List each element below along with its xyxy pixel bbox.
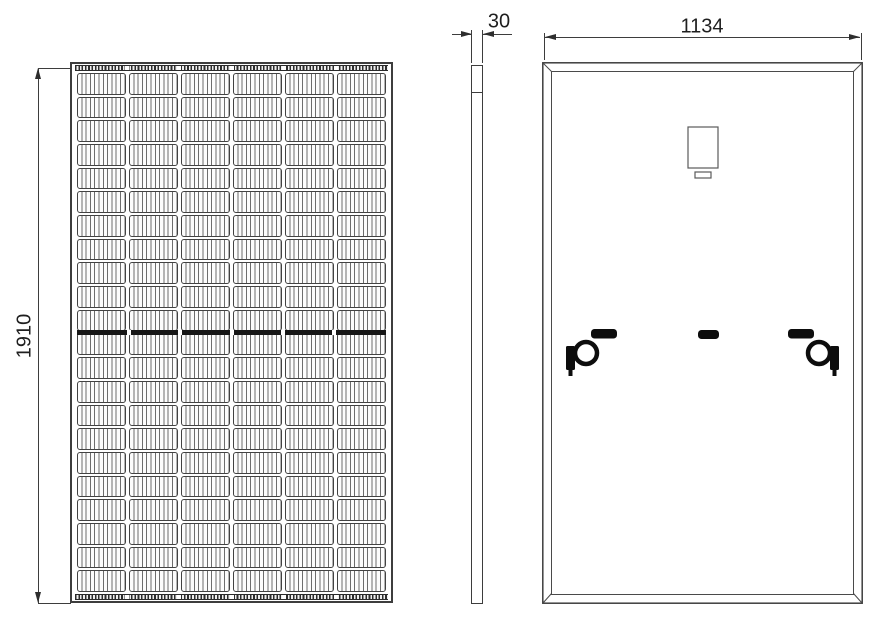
solar-cell [77, 523, 126, 545]
solar-cell [233, 168, 282, 190]
cable-connector-right-vertical [830, 346, 839, 370]
center-busbar [77, 330, 386, 335]
solar-cell [337, 73, 386, 95]
height-dimension-line [38, 68, 39, 603]
solar-cell [285, 120, 334, 142]
solar-cell [233, 357, 282, 379]
solar-cell [337, 310, 386, 332]
solar-cell [285, 357, 334, 379]
band-notch [332, 330, 336, 335]
solar-cell [181, 73, 230, 95]
solar-cell [337, 547, 386, 569]
solar-cell [129, 428, 178, 450]
band-notch [281, 330, 285, 335]
solar-cell [233, 120, 282, 142]
solar-cell [77, 547, 126, 569]
solar-cell [337, 286, 386, 308]
solar-cell [337, 405, 386, 427]
solar-cell [285, 73, 334, 95]
solar-cell [233, 191, 282, 213]
solar-cell [77, 168, 126, 190]
solar-cell [337, 381, 386, 403]
solar-cell [129, 310, 178, 332]
side-frame-seam [472, 92, 482, 93]
solar-cell [181, 286, 230, 308]
solar-cell [129, 168, 178, 190]
solar-cell [285, 239, 334, 261]
solar-cell [77, 97, 126, 119]
band-notch [125, 595, 129, 599]
solar-cell [181, 381, 230, 403]
solar-cell [181, 476, 230, 498]
band-notch [230, 595, 234, 599]
band-notch [334, 66, 338, 70]
solar-cell [233, 215, 282, 237]
solar-cell [77, 215, 126, 237]
solar-cell [181, 523, 230, 545]
junction-box-label-strip [695, 172, 711, 178]
height-dimension-label: 1910 [14, 314, 37, 359]
solar-cell [337, 357, 386, 379]
solar-cell [337, 499, 386, 521]
solar-cell [129, 191, 178, 213]
solar-cell [233, 523, 282, 545]
width-dimension-line [545, 37, 860, 38]
solar-cell [285, 168, 334, 190]
solar-cell [181, 120, 230, 142]
solar-cell [285, 333, 334, 355]
solar-cell [77, 73, 126, 95]
solar-cell [77, 333, 126, 355]
width-dimension-label: 1134 [680, 16, 723, 39]
solar-cell [233, 144, 282, 166]
solar-cell [181, 405, 230, 427]
solar-cell [77, 144, 126, 166]
solar-cell [337, 428, 386, 450]
solar-cell [129, 405, 178, 427]
band-notch [177, 595, 181, 599]
band-notch [230, 330, 234, 335]
solar-cell [285, 191, 334, 213]
frame-band [75, 594, 388, 600]
solar-cell [233, 73, 282, 95]
solar-cell [233, 499, 282, 521]
solar-cell [285, 523, 334, 545]
solar-cell [77, 286, 126, 308]
band-notch [125, 66, 129, 70]
solar-cell [77, 310, 126, 332]
dimension-arrow-left [483, 31, 494, 37]
solar-cell [77, 262, 126, 284]
solar-cell [181, 310, 230, 332]
extension-line-left [471, 30, 472, 63]
solar-cell [285, 570, 334, 592]
solar-cell [129, 547, 178, 569]
solar-cell [233, 405, 282, 427]
solar-cell [233, 452, 282, 474]
solar-cell [285, 97, 334, 119]
solar-cell [181, 452, 230, 474]
solar-cell [77, 120, 126, 142]
solar-cell [181, 547, 230, 569]
solar-cell [337, 215, 386, 237]
solar-cell [77, 405, 126, 427]
extension-line-left [544, 33, 545, 60]
solar-cell [285, 310, 334, 332]
solar-cell [129, 73, 178, 95]
solar-cell [181, 262, 230, 284]
band-notch [334, 595, 338, 599]
solar-cell [233, 428, 282, 450]
extension-line-right [861, 33, 862, 60]
cable-connector-right-pin [833, 370, 837, 376]
solar-cell [129, 381, 178, 403]
solar-cell [285, 144, 334, 166]
dimension-arrow-right [849, 34, 860, 40]
solar-cell [129, 120, 178, 142]
side-panel-profile [471, 65, 483, 604]
solar-cell [77, 452, 126, 474]
solar-cell [181, 191, 230, 213]
solar-cell [285, 262, 334, 284]
solar-cell [233, 547, 282, 569]
band-notch [282, 66, 286, 70]
solar-cell [337, 168, 386, 190]
solar-cell [77, 476, 126, 498]
solar-cell [285, 428, 334, 450]
solar-cell [337, 570, 386, 592]
solar-cell [285, 499, 334, 521]
solar-cell [233, 262, 282, 284]
band-notch [127, 330, 131, 335]
solar-cell [129, 286, 178, 308]
band-notch [177, 66, 181, 70]
solar-cell [337, 523, 386, 545]
dimension-arrow-down [35, 592, 41, 603]
center-cable-clip [698, 330, 719, 339]
solar-cell [233, 239, 282, 261]
solar-cell [77, 381, 126, 403]
solar-cell [337, 262, 386, 284]
cable-connector-left-horizontal [591, 329, 617, 339]
solar-cell [129, 97, 178, 119]
solar-cell [181, 239, 230, 261]
solar-cell [129, 476, 178, 498]
extension-line-bottom [38, 603, 71, 604]
solar-cell [129, 262, 178, 284]
cable-connector-right-horizontal [788, 329, 814, 339]
solar-cell [337, 476, 386, 498]
solar-cell [129, 523, 178, 545]
extension-line-right [482, 30, 483, 63]
solar-cell [285, 476, 334, 498]
solar-cell [337, 239, 386, 261]
solar-cell [233, 97, 282, 119]
solar-cell [285, 547, 334, 569]
solar-cell [181, 97, 230, 119]
cable-connector-left-vertical [566, 346, 575, 370]
solar-cell [181, 168, 230, 190]
cable-connector-left-pin [569, 370, 573, 376]
solar-cell [129, 239, 178, 261]
front-panel-frame [70, 62, 393, 603]
solar-cell [233, 333, 282, 355]
solar-cell [181, 499, 230, 521]
frame-band [75, 65, 388, 71]
solar-cell [285, 215, 334, 237]
dimension-arrow-left [545, 34, 556, 40]
solar-cell [77, 239, 126, 261]
solar-cell [233, 286, 282, 308]
solar-cell [181, 215, 230, 237]
solar-cell [77, 191, 126, 213]
drawing-canvas: 1910 30 1134 [0, 0, 890, 630]
solar-cell [285, 286, 334, 308]
solar-cell [181, 357, 230, 379]
solar-cell [233, 381, 282, 403]
solar-cell [181, 570, 230, 592]
solar-cell [77, 428, 126, 450]
solar-cell [77, 499, 126, 521]
dimension-arrow-up [35, 68, 41, 79]
solar-cell [77, 570, 126, 592]
solar-cell [285, 381, 334, 403]
solar-cell [337, 333, 386, 355]
band-notch [230, 66, 234, 70]
solar-cell [77, 357, 126, 379]
solar-cell [233, 310, 282, 332]
solar-cell [337, 144, 386, 166]
band-notch [282, 595, 286, 599]
solar-cell [129, 333, 178, 355]
solar-cell [337, 452, 386, 474]
solar-cell [129, 499, 178, 521]
junction-box [688, 127, 718, 168]
solar-cell [285, 405, 334, 427]
solar-cell [337, 191, 386, 213]
solar-cell [285, 452, 334, 474]
solar-cell [129, 215, 178, 237]
back-panel-drawing [542, 62, 863, 604]
solar-cell [129, 452, 178, 474]
solar-cell [337, 120, 386, 142]
solar-cell [129, 144, 178, 166]
band-notch [178, 330, 182, 335]
solar-cell [181, 428, 230, 450]
solar-cell [181, 144, 230, 166]
solar-cell [337, 97, 386, 119]
solar-cell [181, 333, 230, 355]
solar-cell [233, 476, 282, 498]
solar-cell [129, 357, 178, 379]
extension-line-top [38, 68, 71, 69]
solar-cell [129, 570, 178, 592]
solar-cell [233, 570, 282, 592]
